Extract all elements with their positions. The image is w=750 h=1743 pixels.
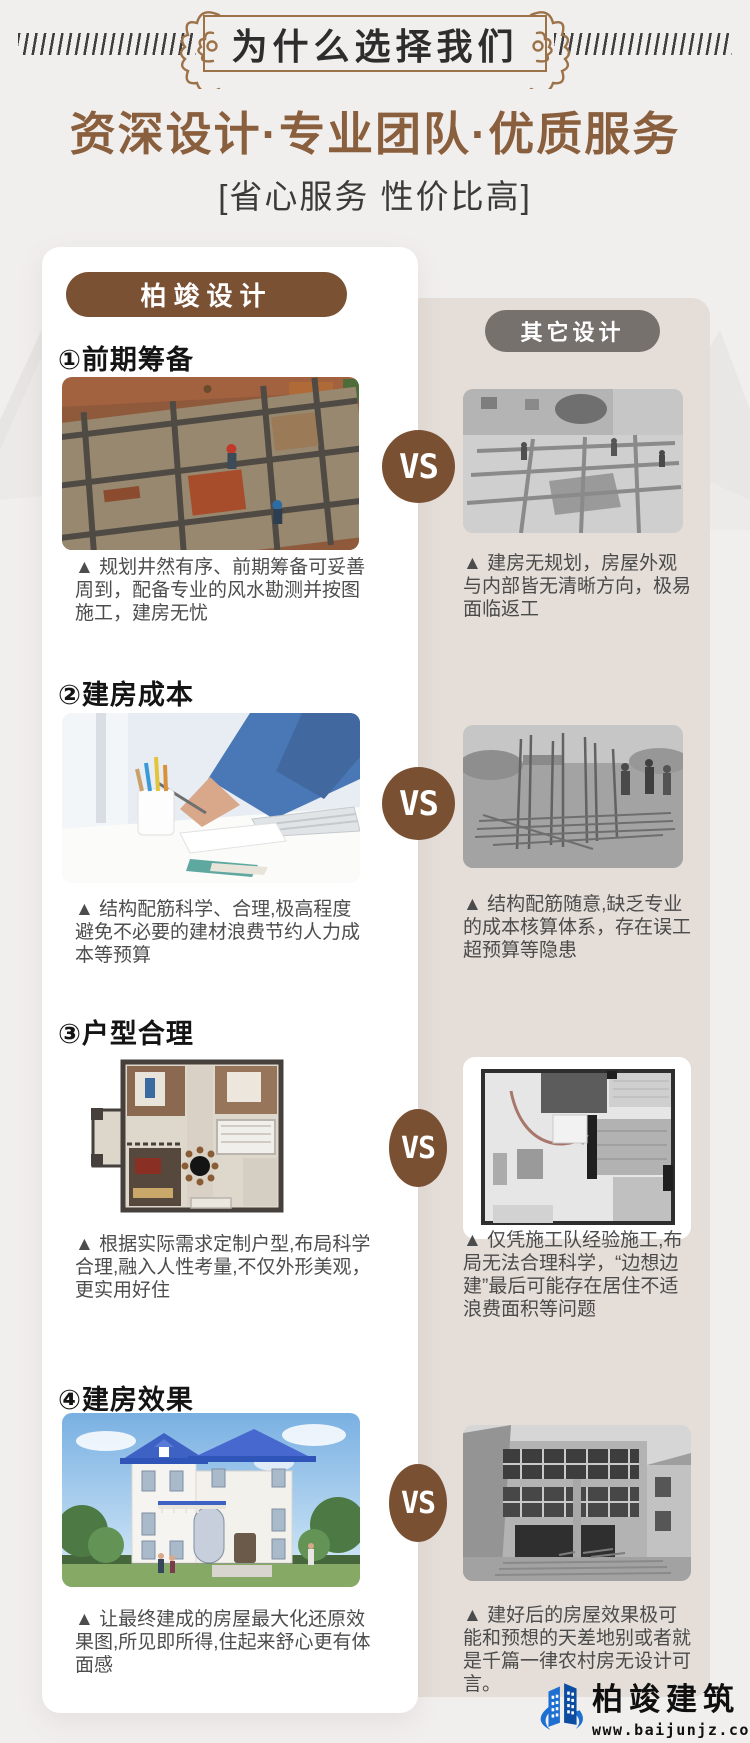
section-heading-1: ①前期筹备 [58, 338, 194, 377]
vs-badge-3: VS [389, 1109, 447, 1187]
company-website: www.baijunjz.com [592, 1721, 750, 1739]
caption-right-2: ▲ 结构配筋随意,缺乏专业 的成本核算体系，存在误工 超预算等隐患 [463, 893, 708, 962]
section-heading-3: ③户型合理 [58, 1012, 194, 1051]
caption-left-2: ▲ 结构配筋科学、合理,极高程度 避免不必要的建材浪费节约人力成 本等预算 [75, 898, 395, 967]
caption-right-1: ▲ 建房无规划，房屋外观 与内部皆无清晰方向，极易 面临返工 [463, 552, 708, 621]
designer-budgeting-photo [62, 713, 360, 883]
our-design-badge: 柏竣设计 [66, 272, 347, 317]
caption-left-1: ▲ 规划井然有序、前期筹备可妥善 周到，配备专业的风水勘测并按图 施工，建房无忧 [75, 556, 395, 625]
caption-left-3: ▲ 根据实际需求定制户型,布局科学 合理,融入人性考量,不仅外形美观， 更实用好… [75, 1233, 405, 1302]
vs-badge-4: VS [389, 1464, 447, 1542]
company-logo: 柏竣建筑 www.baijunjz.com [536, 1674, 750, 1739]
why-choose-us-title: 为什么选择我们 [231, 18, 518, 70]
vs-badge-1: VS [382, 430, 455, 503]
custom-floorplan-image [87, 1048, 295, 1222]
hatch-lines-left [18, 33, 196, 55]
company-name: 柏竣建筑 [592, 1674, 750, 1719]
caption-right-3: ▲ 仅凭施工队经验施工,布 局无法合理科学，“边想边 建”最后可能存在居住不适 … [463, 1229, 708, 1321]
caption-left-4: ▲ 让最终建成的房屋最大化还原效 果图,所见即所得,住起来舒心更有体 面感 [75, 1608, 395, 1677]
section-heading-2: ②建房成本 [58, 673, 194, 712]
vs-badge-2: VS [382, 767, 455, 840]
random-rebar-site-photo [463, 725, 683, 868]
generic-floorplan-image [463, 1057, 691, 1239]
main-slogan: 资深设计·专业团队·优质服务 [0, 98, 750, 164]
finished-villa-render [62, 1413, 360, 1587]
section-heading-4: ④建房效果 [58, 1378, 194, 1417]
unplanned-foundation-site-photo [463, 389, 683, 533]
others-design-badge: 其它设计 [485, 310, 660, 352]
sub-slogan: [省心服务 性价比高] [0, 170, 750, 218]
hatch-lines-right [554, 33, 732, 55]
cloud-scroll-ornament-right [525, 3, 571, 89]
section-title-frame: 为什么选择我们 [203, 15, 547, 72]
promo-poster: 为什么选择我们 资深设计·专业团队·优质服务 [省心服务 性价比高] 柏竣设计 … [0, 0, 750, 1743]
cloud-scroll-ornament-left [179, 3, 225, 89]
plain-rural-house-photo [463, 1425, 691, 1581]
company-logo-icon [536, 1674, 588, 1732]
planned-foundation-site-photo [62, 377, 359, 550]
